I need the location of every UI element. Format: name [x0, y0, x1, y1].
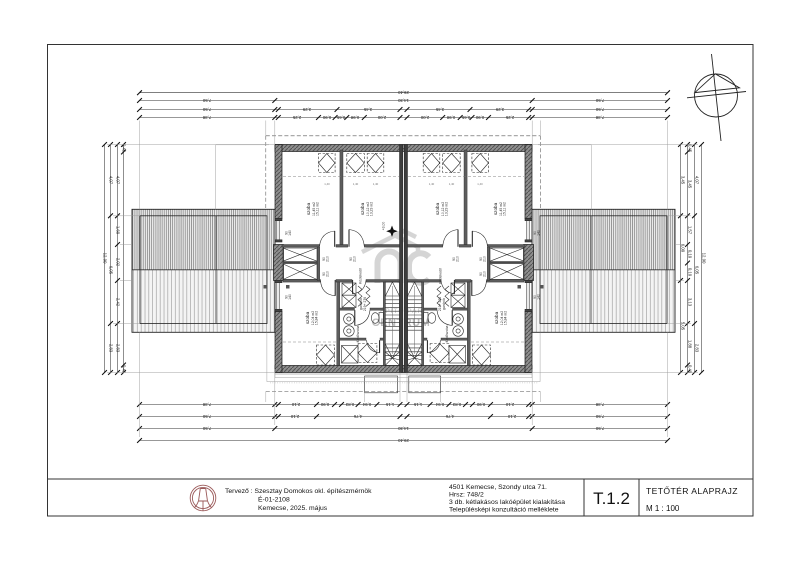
- svg-text:0,90: 0,90: [475, 115, 484, 120]
- svg-text:1,40: 1,40: [449, 182, 455, 186]
- svg-text:fürdőszoba: fürdőszoba: [356, 326, 360, 343]
- svg-text:0,83: 0,83: [345, 402, 354, 407]
- svg-text:7,50: 7,50: [595, 414, 604, 419]
- svg-text:1,40: 1,40: [373, 182, 379, 186]
- svg-text:1,15: 1,15: [413, 402, 422, 407]
- svg-text:0,90: 0,90: [322, 115, 331, 120]
- svg-text:szoba: szoba: [494, 311, 499, 324]
- svg-text:Közlekedő: Közlekedő: [359, 268, 363, 284]
- svg-text:3,29: 3,29: [302, 107, 311, 112]
- svg-text:0,45: 0,45: [121, 144, 126, 153]
- svg-text:210: 210: [482, 256, 486, 262]
- svg-text:29,40: 29,40: [398, 90, 409, 95]
- svg-text:3,45: 3,45: [688, 180, 693, 189]
- svg-text:0,94: 0,94: [362, 402, 371, 407]
- svg-text:1,57: 1,57: [688, 226, 693, 235]
- svg-text:3,13: 3,13: [688, 298, 693, 307]
- svg-text:2,83: 2,83: [115, 344, 120, 353]
- svg-text:7,50: 7,50: [595, 107, 604, 112]
- svg-text:14,30: 14,30: [398, 98, 409, 103]
- svg-text:210: 210: [352, 256, 356, 262]
- svg-text:140: 140: [288, 294, 292, 300]
- svg-text:7,38: 7,38: [595, 402, 604, 407]
- svg-text:0,83: 0,83: [452, 402, 461, 407]
- svg-text:15,84 m2: 15,84 m2: [504, 311, 508, 325]
- svg-text:15,84 m2: 15,84 m2: [315, 311, 319, 325]
- svg-text:210: 210: [455, 256, 459, 262]
- svg-text:2,10: 2,10: [505, 402, 514, 407]
- svg-text:219+ 276: 219+ 276: [363, 297, 367, 311]
- svg-text:7,38: 7,38: [595, 115, 604, 120]
- svg-text:15,11 m2: 15,11 m2: [316, 202, 320, 216]
- svg-text:0,98: 0,98: [350, 115, 359, 120]
- svg-text:6,05: 6,05: [695, 266, 700, 275]
- svg-text:15,11 m2: 15,11 m2: [503, 202, 507, 216]
- svg-text:219+ 276: 219+ 276: [438, 297, 442, 311]
- svg-text:2,25: 2,25: [292, 115, 301, 120]
- svg-text:1,60: 1,60: [115, 226, 120, 235]
- svg-text:7,50: 7,50: [595, 426, 604, 431]
- svg-text:2,10: 2,10: [290, 414, 299, 419]
- svg-text:1,40: 1,40: [429, 182, 435, 186]
- svg-text:7,50: 7,50: [595, 98, 604, 103]
- svg-text:13,23 m2: 13,23 m2: [370, 202, 374, 216]
- svg-text:210: 210: [325, 271, 329, 277]
- svg-text:szoba: szoba: [493, 202, 498, 215]
- svg-text:fürdőszoba: fürdőszoba: [445, 326, 449, 343]
- svg-text:szoba: szoba: [360, 202, 365, 215]
- svg-text:0,90: 0,90: [476, 402, 485, 407]
- svg-text:2,42: 2,42: [115, 298, 120, 307]
- svg-text:2,25: 2,25: [505, 115, 514, 120]
- svg-text:gardrób: gardrób: [442, 298, 446, 310]
- svg-text:1,15: 1,15: [385, 402, 394, 407]
- svg-text:0,90: 0,90: [320, 402, 329, 407]
- svg-text:0,10: 0,10: [688, 250, 693, 259]
- svg-text:12,90: 12,90: [702, 253, 707, 264]
- svg-text:3,45: 3,45: [363, 107, 372, 112]
- svg-text:7,50: 7,50: [202, 414, 211, 419]
- svg-text:2,83: 2,83: [695, 344, 700, 353]
- svg-text:6,05: 6,05: [108, 266, 113, 275]
- svg-text:szoba: szoba: [306, 202, 311, 215]
- svg-text:T.1.2: T.1.2: [593, 489, 630, 508]
- svg-text:1,40: 1,40: [477, 182, 483, 186]
- svg-text:4,76: 4,76: [445, 414, 454, 419]
- svg-text:0,65: 0,65: [336, 115, 345, 120]
- svg-text:3,29: 3,29: [495, 107, 504, 112]
- svg-text:4501 Kemecse, Szondy utca 71.: 4501 Kemecse, Szondy utca 71.: [449, 484, 547, 491]
- svg-text:7,38: 7,38: [202, 402, 211, 407]
- svg-text:szoba: szoba: [435, 202, 440, 215]
- svg-text:M 1 : 100: M 1 : 100: [646, 504, 680, 513]
- svg-text:2,00: 2,00: [420, 115, 429, 120]
- svg-text:29,40: 29,40: [398, 438, 409, 443]
- svg-text:140: 140: [536, 230, 540, 236]
- svg-text:0,10: 0,10: [688, 268, 693, 277]
- svg-text:7,50: 7,50: [202, 98, 211, 103]
- svg-text:Településképi konzultáció mell: Településképi konzultáció melléklete: [449, 507, 559, 514]
- svg-text:szoba: szoba: [305, 311, 310, 324]
- svg-text:4,07: 4,07: [108, 176, 113, 185]
- svg-text:1,40: 1,40: [324, 182, 330, 186]
- svg-text:3 db. kétlakásos lakóépület ki: 3 db. kétlakásos lakóépület kialakítása: [449, 499, 565, 506]
- svg-text:210: 210: [325, 256, 329, 262]
- svg-text:13,23 m2: 13,23 m2: [445, 202, 449, 216]
- svg-text:7,50: 7,50: [202, 107, 211, 112]
- svg-text:É-01-2108: É-01-2108: [258, 495, 290, 504]
- svg-text:7,38: 7,38: [202, 115, 211, 120]
- svg-text:Tervező : Szesztay Domokos okl: Tervező : Szesztay Domokos okl. építészm…: [225, 488, 372, 495]
- svg-text:2,83: 2,83: [108, 344, 113, 353]
- svg-text:Közlekedő: Közlekedő: [439, 268, 443, 284]
- svg-text:5,05: 5,05: [681, 322, 686, 331]
- svg-text:1,88: 1,88: [688, 340, 693, 349]
- svg-text:Kemecse, 2025. május: Kemecse, 2025. május: [258, 505, 328, 512]
- svg-text:0,98: 0,98: [446, 115, 455, 120]
- svg-text:3,45: 3,45: [435, 107, 444, 112]
- svg-text:210: 210: [482, 271, 486, 277]
- svg-text:3,45: 3,45: [681, 176, 686, 185]
- svg-text:6,00: 6,00: [681, 244, 686, 253]
- svg-text:2,02: 2,02: [115, 258, 120, 267]
- svg-text:0,65: 0,65: [461, 115, 470, 120]
- svg-text:2,00: 2,00: [377, 115, 386, 120]
- svg-text:Hrsz: 748/2: Hrsz: 748/2: [449, 492, 484, 499]
- svg-text:4,07: 4,07: [115, 176, 120, 185]
- svg-text:7,50: 7,50: [202, 426, 211, 431]
- svg-text:0,94: 0,94: [435, 402, 444, 407]
- svg-text:2,10: 2,10: [291, 402, 300, 407]
- svg-text:140: 140: [536, 294, 540, 300]
- svg-text:4,07: 4,07: [695, 176, 700, 185]
- svg-text:140: 140: [288, 230, 292, 236]
- svg-text:12,90: 12,90: [102, 253, 107, 264]
- svg-text:14,30: 14,30: [398, 426, 409, 431]
- svg-text:TETŐTÉR ALAPRAJZ: TETŐTÉR ALAPRAJZ: [646, 486, 738, 496]
- svg-text:4,76: 4,76: [353, 414, 362, 419]
- svg-text:+3,00: +3,00: [382, 222, 386, 231]
- svg-text:0,45: 0,45: [688, 144, 693, 153]
- svg-text:2,10: 2,10: [507, 414, 516, 419]
- svg-text:1,40: 1,40: [353, 182, 359, 186]
